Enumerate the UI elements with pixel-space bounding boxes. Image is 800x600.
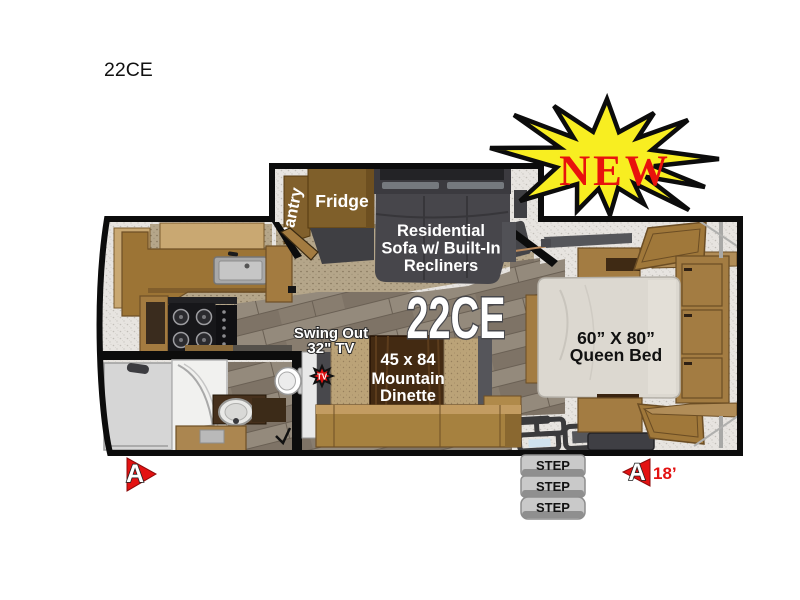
svg-text:Mountain: Mountain [371,370,444,388]
svg-text:TV: TV [317,373,328,382]
svg-text:45 x 84: 45 x 84 [380,351,436,369]
svg-text:Sofa w/ Built-In: Sofa w/ Built-In [381,240,500,258]
svg-text:Dinette: Dinette [380,387,436,405]
svg-text:STEP: STEP [536,458,570,473]
svg-text:STEP: STEP [536,500,570,515]
svg-text:32" TV: 32" TV [307,340,354,357]
svg-text:Recliners: Recliners [404,257,478,275]
svg-text:A: A [628,459,645,486]
svg-text:22CE: 22CE [104,59,153,81]
svg-text:18’: 18’ [653,464,677,483]
svg-text:22CE: 22CE [407,286,506,351]
svg-text:Residential: Residential [397,222,485,240]
svg-text:STEP: STEP [536,479,570,494]
svg-text:NEW: NEW [559,148,671,195]
svg-text:Queen Bed: Queen Bed [570,345,662,365]
svg-text:Fridge: Fridge [315,191,369,211]
svg-text:A: A [126,460,144,488]
